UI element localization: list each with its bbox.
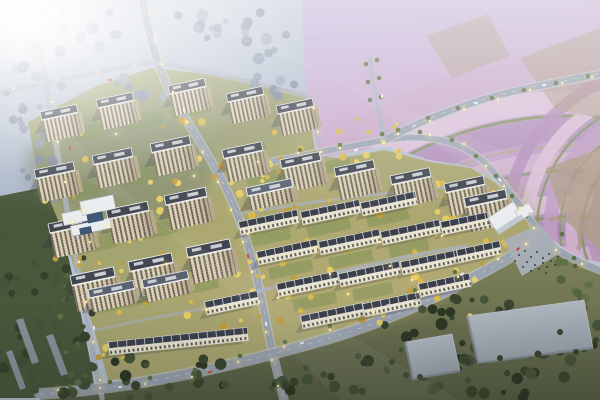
streetlight (71, 221, 73, 223)
streetlight (347, 293, 349, 295)
person (538, 268, 540, 270)
tree (62, 264, 71, 273)
person (548, 253, 550, 255)
tree (119, 269, 123, 273)
person (530, 270, 532, 272)
roadside-tree (572, 256, 577, 261)
person (524, 250, 526, 252)
tree (53, 273, 60, 280)
streetlight (497, 258, 499, 260)
person (557, 256, 559, 258)
person (530, 256, 532, 258)
tree (0, 278, 9, 287)
tree (308, 294, 314, 300)
tree (555, 258, 563, 266)
streetlight (329, 273, 331, 275)
tree (31, 259, 38, 266)
streetlight (555, 249, 557, 251)
tree (587, 282, 593, 288)
streetlight (525, 243, 527, 245)
tree (62, 284, 66, 288)
person (534, 264, 536, 266)
tree (3, 235, 10, 242)
roadside-tree (560, 232, 565, 237)
person (542, 262, 544, 264)
tree (31, 288, 38, 295)
car (77, 236, 79, 240)
tree (64, 273, 70, 279)
car-body (77, 236, 79, 240)
person (514, 260, 516, 262)
person (546, 266, 548, 268)
tree (97, 261, 101, 265)
tree (120, 261, 124, 265)
aerial-render-frame (0, 0, 600, 400)
person (518, 254, 520, 256)
tree (50, 279, 58, 287)
streetlight (89, 241, 91, 243)
tree (17, 281, 27, 291)
streetlight (411, 279, 413, 281)
streetlight (242, 241, 244, 243)
streetlight (247, 233, 249, 235)
tree (412, 249, 417, 254)
streetlight (441, 235, 443, 237)
streetlight (417, 291, 419, 293)
streetlight (581, 263, 583, 265)
person (554, 264, 556, 266)
streetlight (251, 271, 253, 273)
tree (573, 289, 580, 296)
streetlight (165, 263, 167, 265)
tree (13, 276, 19, 282)
streetlight (533, 227, 535, 229)
streetlight (379, 241, 381, 243)
streetlight (78, 261, 80, 263)
person (542, 257, 544, 259)
atmosphere (0, 0, 600, 400)
streetlight (389, 265, 391, 267)
bottom-vignette (0, 300, 600, 400)
tree (40, 272, 48, 280)
tree (472, 277, 478, 283)
tree (556, 275, 565, 284)
person (550, 260, 552, 262)
tree (247, 260, 251, 264)
person (536, 251, 538, 253)
roadside-tree (453, 270, 458, 275)
person (545, 272, 547, 274)
streetlight (457, 276, 459, 278)
streetlight (315, 249, 317, 251)
aerial-residential-rendering (0, 0, 600, 400)
streetlight (107, 225, 109, 227)
tree (261, 275, 265, 279)
tree (480, 261, 485, 266)
person (522, 266, 524, 268)
tree (254, 274, 259, 279)
tree (8, 290, 15, 297)
tree (573, 264, 578, 269)
person (526, 261, 528, 263)
